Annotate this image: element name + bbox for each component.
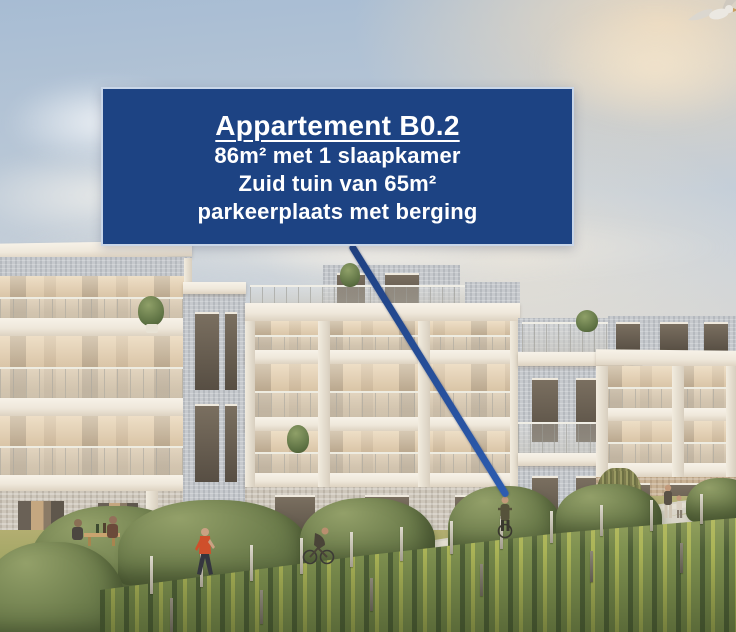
pedestrians (664, 485, 682, 518)
apartment-info-card: Appartement B0.2 86m² met 1 slaapkamer Z… (101, 87, 574, 246)
jogger (195, 528, 215, 575)
card-detail-line: parkeerplaats met berging (103, 198, 572, 226)
terrace-diners (72, 516, 120, 546)
card-detail-line: Zuid tuin van 65m² (103, 170, 572, 198)
card-title: Appartement B0.2 (103, 110, 572, 142)
architectural-render: Appartement B0.2 86m² met 1 slaapkamer Z… (0, 0, 736, 632)
cyclist (498, 497, 512, 538)
cyclist (304, 528, 334, 564)
card-detail-line: 86m² met 1 slaapkamer (103, 142, 572, 170)
